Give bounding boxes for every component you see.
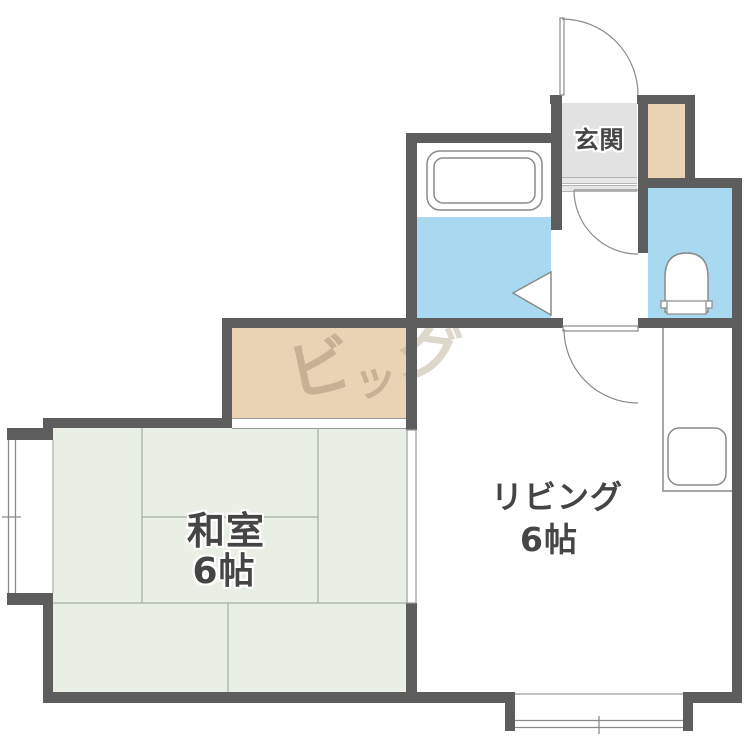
living-door-icon [563, 326, 638, 403]
toilet-icon [661, 253, 712, 314]
window-left-icon [2, 440, 21, 593]
entrance-door-icon [560, 18, 638, 95]
window-bottom-icon [515, 694, 683, 734]
washitsu-label: 和室 [126, 512, 326, 550]
living-label: リビング [457, 481, 657, 513]
floor-plan: ビッグ [0, 0, 750, 750]
bath-door-icon [513, 272, 551, 315]
washitsu-size: 6帖 [124, 554, 324, 590]
living-size: 6帖 [449, 523, 649, 556]
washitsu-sliding-door-icon [407, 430, 416, 603]
genkan-label: 玄関 [562, 128, 637, 152]
fixtures-layer [0, 0, 750, 750]
bathtub-icon [427, 151, 542, 210]
kitchen-sink-icon [663, 328, 732, 491]
hall-door-icon [574, 190, 638, 254]
